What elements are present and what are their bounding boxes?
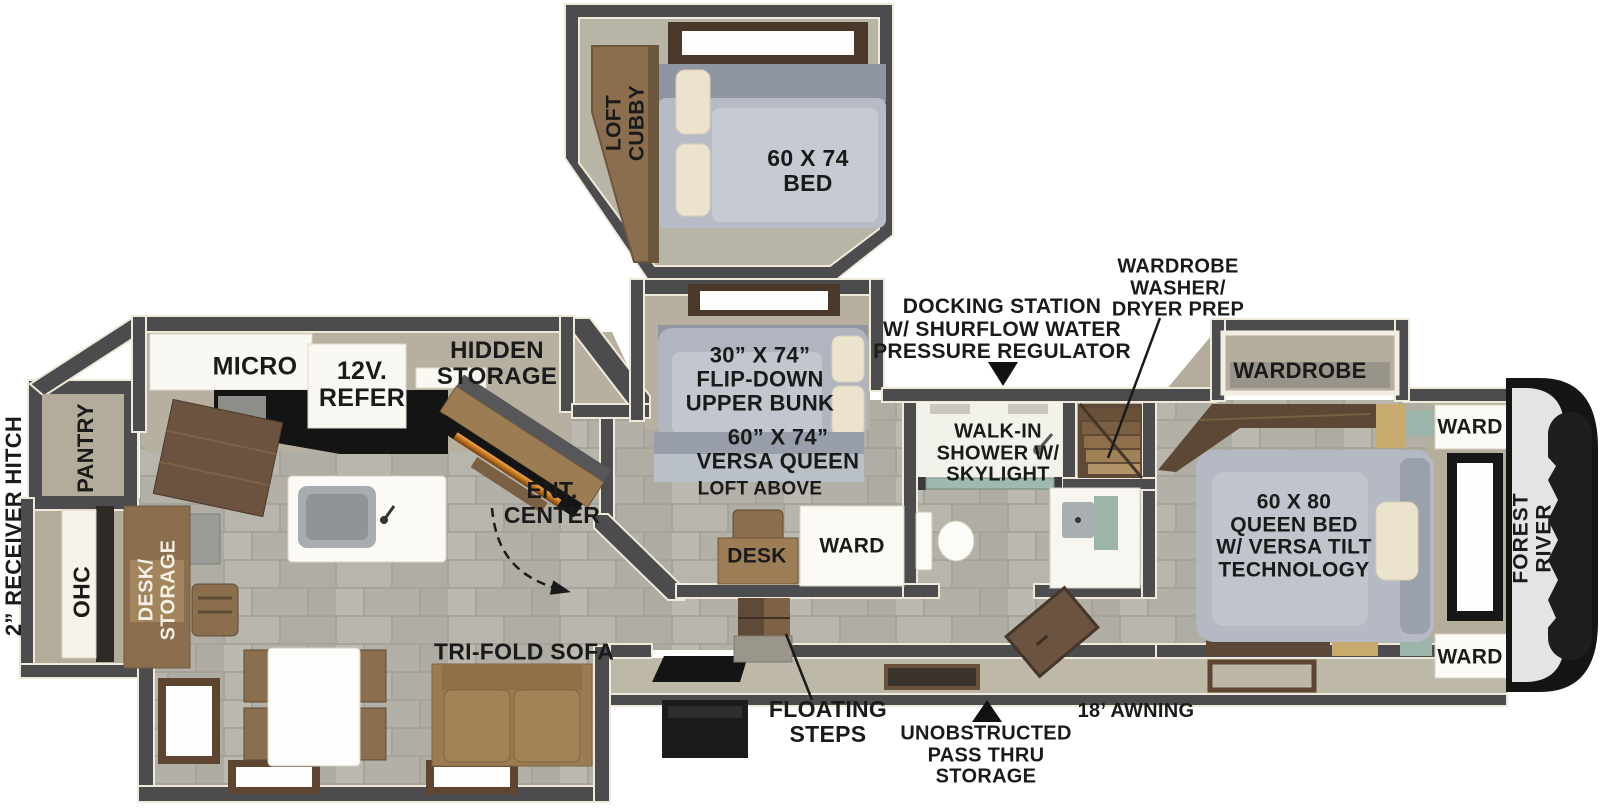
label-docking-station: DOCKING STATION W/ SHURFLOW WATER PRESSU… <box>873 296 1131 364</box>
label-pantry: PANTRY <box>74 403 98 493</box>
desk-chair <box>733 510 783 542</box>
label-ward-bottom: WARD <box>1437 647 1502 670</box>
label-ent-center: ENT. CENTER <box>504 478 600 528</box>
label-tri-fold-sofa: TRI-FOLD SOFA <box>434 640 614 665</box>
label-loft-above: LOFT ABOVE <box>698 480 823 501</box>
cabinet <box>190 514 220 564</box>
label-flip-down-bunk: 30” X 74” FLIP-DOWN UPPER BUNK <box>686 343 834 414</box>
pillow <box>832 336 864 382</box>
dinette-chair <box>360 708 386 760</box>
label-wardrobe-prep: WARDROBE WASHER/ DRYER PREP <box>1112 257 1244 322</box>
desk-chair <box>192 584 238 636</box>
dinette-chair <box>244 650 270 702</box>
cabinet <box>1376 404 1406 448</box>
tri-fold-sofa <box>432 664 592 766</box>
label-pass-thru: UNOBSTRUCTED PASS THRU STORAGE <box>900 724 1071 789</box>
label-desk: DESK <box>727 546 787 569</box>
pass-thru-hatch <box>886 666 978 688</box>
pillow <box>676 70 710 134</box>
label-wardrobe: WARDROBE <box>1233 359 1366 383</box>
loft-steps-closet <box>1078 404 1142 478</box>
pillow <box>1376 502 1418 580</box>
dinette-chair <box>244 708 270 760</box>
nightstand <box>1406 410 1434 436</box>
label-refer: 12V. REFER <box>319 358 405 412</box>
storage-hatch <box>1210 662 1314 690</box>
dinette-chair <box>360 650 386 702</box>
label-awning: 18’ AWNING <box>1078 701 1195 723</box>
label-ward-top: WARD <box>1437 417 1502 440</box>
label-loft-bed: 60 X 74 BED <box>767 146 848 196</box>
label-receiver-hitch: 2” RECEIVER HITCH <box>2 416 26 636</box>
floorplan-canvas: LOFT CUBBY 60 X 74 BED MICRO 12V. REFER … <box>0 0 1600 809</box>
label-micro: MICRO <box>213 354 298 381</box>
label-desk-storage: DESK/ STORAGE <box>136 540 179 641</box>
toilet <box>938 521 974 561</box>
label-floating-steps: FLOATING STEPS <box>769 697 887 747</box>
label-hidden-storage: HIDDEN STORAGE <box>437 338 557 390</box>
label-versa-queen: 60” X 74” VERSA QUEEN <box>697 425 860 473</box>
label-loft-cubby: LOFT CUBBY <box>603 85 648 161</box>
docking-station-pointer-icon <box>988 362 1018 386</box>
label-ward-bunk: WARD <box>819 536 884 559</box>
label-ohc: OHC <box>70 566 95 618</box>
label-forest-river-brand: FOREST RIVER <box>1510 492 1555 583</box>
label-walk-in-shower: WALK-IN SHOWER W/ SKYLIGHT <box>937 422 1060 487</box>
pillow <box>676 144 710 216</box>
label-queen-bed: 60 X 80 QUEEN BED W/ VERSA TILT TECHNOLO… <box>1216 492 1372 583</box>
dinette-table <box>268 648 360 766</box>
